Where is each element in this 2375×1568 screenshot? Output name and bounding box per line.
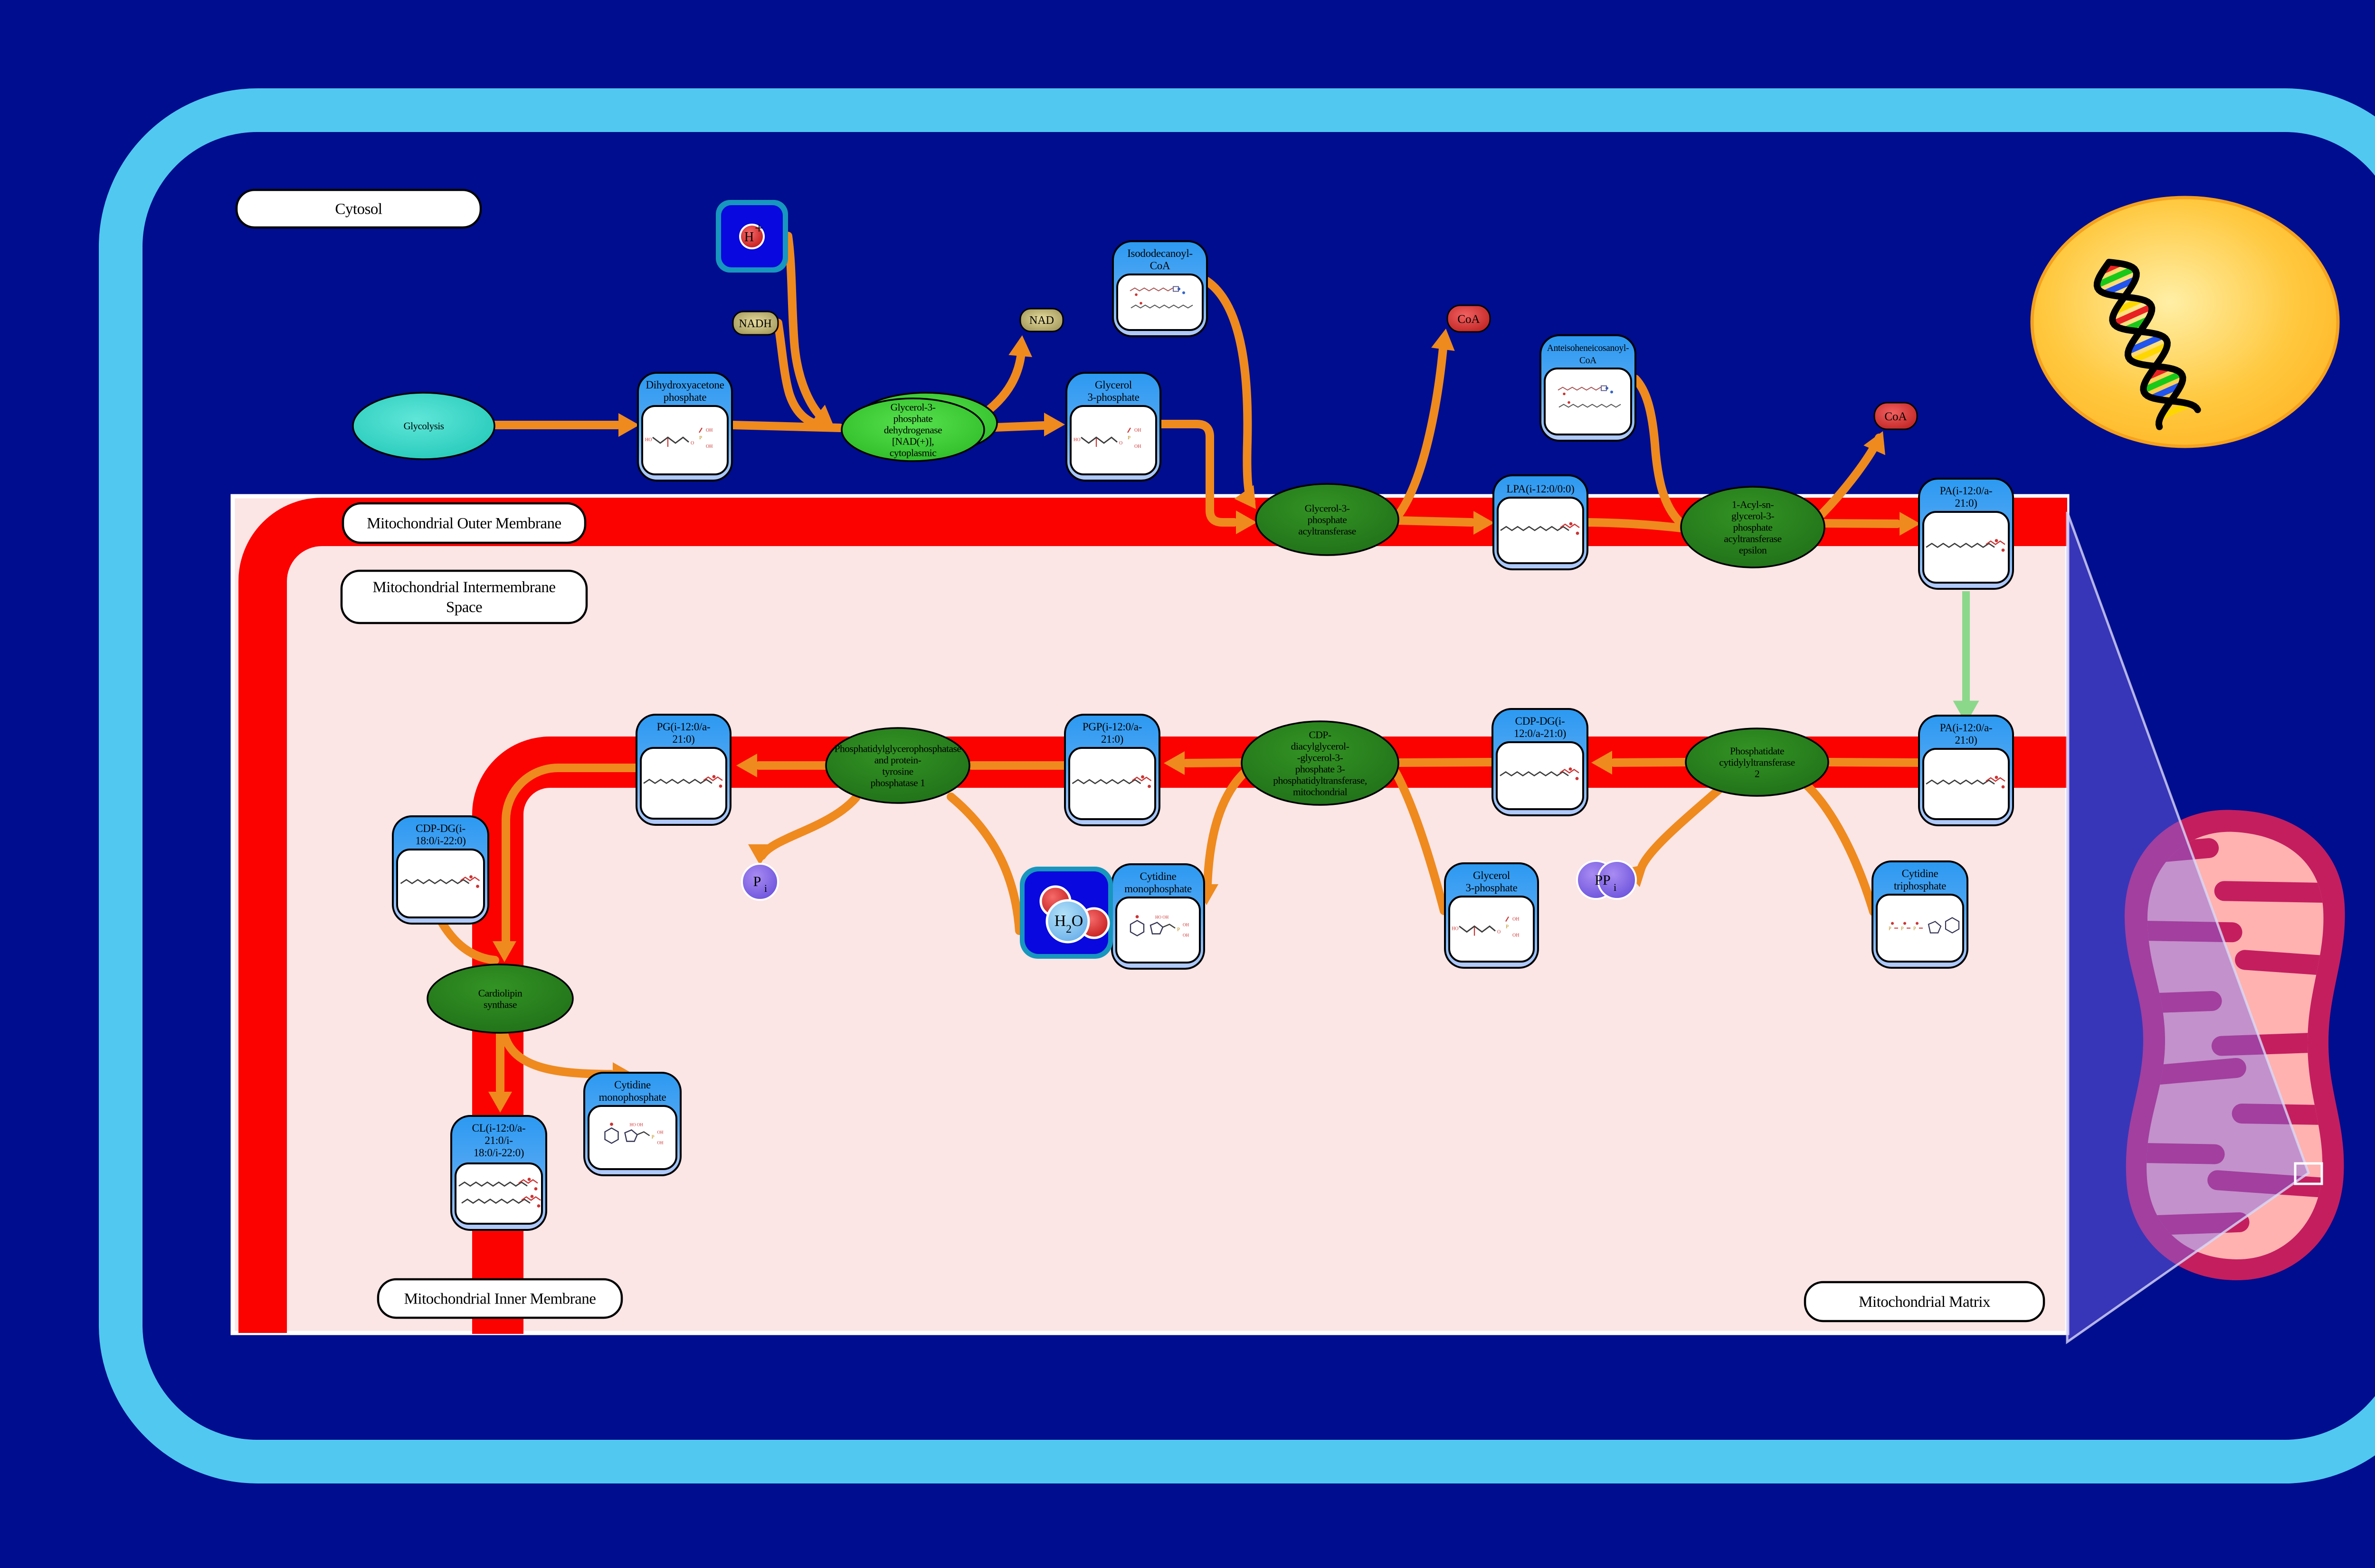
svg-text:NADH: NADH [739, 318, 771, 330]
svg-text:OH: OH [1512, 917, 1519, 922]
svg-text:P: P [1506, 924, 1509, 930]
svg-text:NAD: NAD [1029, 314, 1054, 327]
svg-text:O: O [1072, 912, 1083, 930]
svg-text:O: O [691, 441, 694, 446]
svg-text:Mitochondrial Outer Membrane: Mitochondrial Outer Membrane [367, 515, 561, 532]
svg-text:Cardiolipinsynthase: Cardiolipinsynthase [478, 987, 522, 1010]
svg-text:H: H [1054, 912, 1066, 930]
svg-text:2: 2 [1066, 923, 1072, 935]
svg-text:P: P [1889, 926, 1891, 932]
svg-text:HO OH: HO OH [1155, 915, 1169, 920]
svg-text:P: P [652, 1134, 655, 1140]
svg-text:OH: OH [1134, 444, 1141, 449]
svg-text:P: P [699, 435, 702, 441]
svg-text:P: P [1128, 435, 1130, 441]
svg-text:Glycerol-3-phosphatedehydrogen: Glycerol-3-phosphatedehydrogenase[NAD(+)… [884, 401, 942, 458]
svg-text:P: P [1901, 926, 1904, 932]
svg-text:Mitochondrial Inner Membrane: Mitochondrial Inner Membrane [404, 1291, 596, 1308]
svg-text:LPA(i-12:0/0:0): LPA(i-12:0/0:0) [1507, 483, 1575, 495]
svg-text:OH: OH [1512, 933, 1519, 938]
svg-text:OH: OH [657, 1130, 664, 1135]
svg-text:i: i [1614, 881, 1616, 893]
svg-text:OH: OH [1134, 428, 1141, 433]
svg-text:i: i [764, 882, 767, 894]
svg-text:P: P [753, 874, 761, 889]
svg-text:P: P [1177, 927, 1180, 933]
svg-text:CDP-DG(i-18:0/i-22:0): CDP-DG(i-18:0/i-22:0) [415, 822, 465, 847]
svg-text:OH: OH [1183, 923, 1189, 927]
svg-text:P: P [1913, 926, 1916, 932]
svg-text:CoA: CoA [1457, 313, 1480, 326]
svg-text:OH: OH [1183, 933, 1189, 938]
svg-text:Cytosol: Cytosol [335, 201, 382, 218]
svg-text:Glycolysis: Glycolysis [404, 420, 444, 432]
svg-text:O: O [1497, 930, 1501, 935]
svg-text:HO: HO [1073, 437, 1080, 443]
svg-text:Mitochondrial Matrix: Mitochondrial Matrix [1859, 1294, 1991, 1311]
svg-text:HO: HO [645, 437, 652, 443]
svg-text:+: + [755, 220, 764, 237]
svg-text:OH: OH [706, 428, 712, 433]
svg-text:OH: OH [706, 444, 712, 449]
svg-text:Glycerol3-phosphate: Glycerol3-phosphate [1465, 869, 1517, 894]
svg-text:CDP-DG(i-12:0/a-21:0): CDP-DG(i-12:0/a-21:0) [1514, 715, 1566, 739]
svg-text:O: O [1119, 441, 1122, 446]
svg-text:H: H [744, 230, 754, 245]
svg-text:HO OH: HO OH [630, 1123, 644, 1127]
svg-text:Glycerol3-phosphate: Glycerol3-phosphate [1087, 379, 1139, 403]
svg-text:PP: PP [1595, 872, 1610, 888]
svg-text:OH: OH [657, 1141, 664, 1145]
svg-text:HO: HO [1452, 926, 1458, 932]
svg-text:CoA: CoA [1884, 410, 1907, 423]
